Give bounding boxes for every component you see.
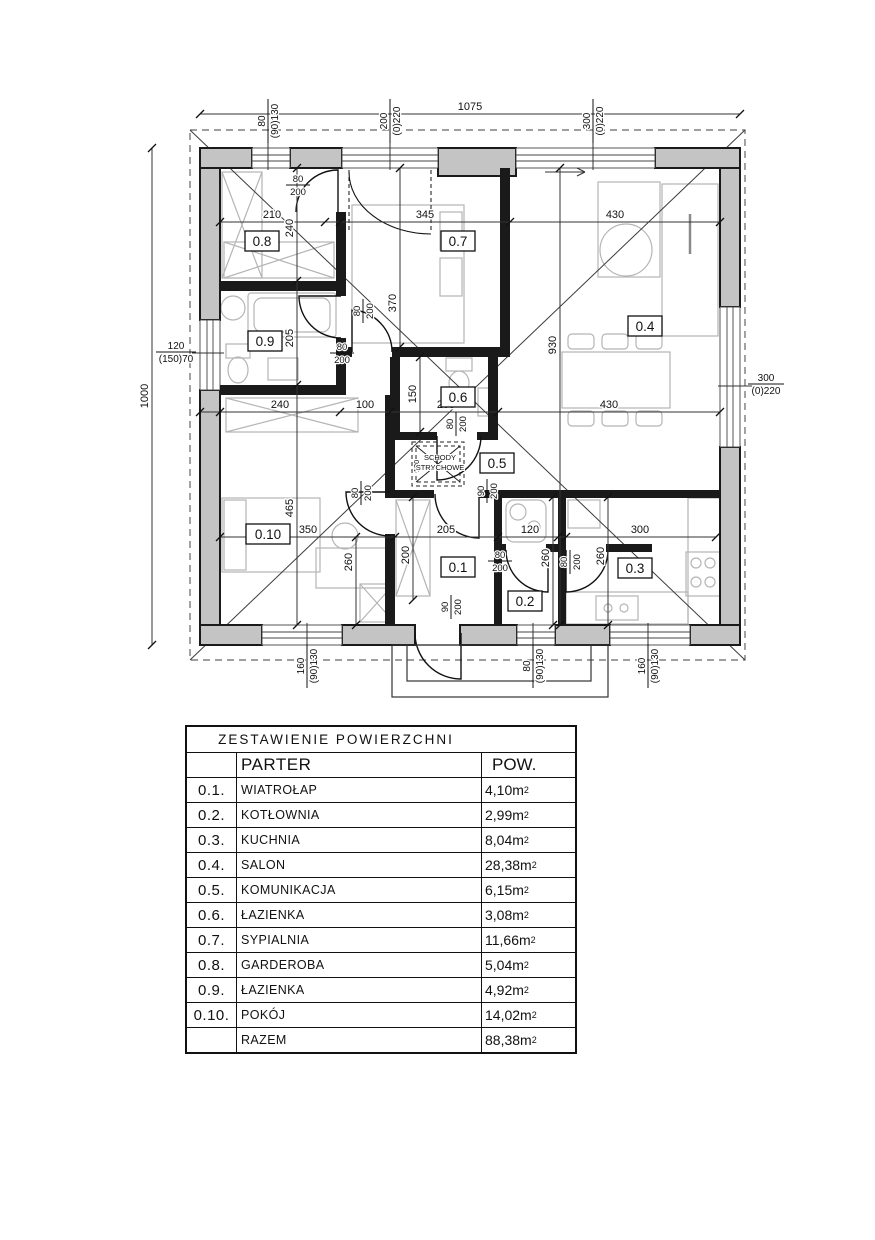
table-row: 0.8. GARDEROBA 5,04m2	[187, 952, 575, 977]
bed-icon	[352, 205, 464, 343]
area-value: 6,15	[485, 882, 512, 898]
svg-text:200: 200	[334, 355, 350, 366]
dim-label: 300	[631, 524, 649, 536]
area-unit: m	[512, 832, 524, 848]
area-unit: m	[512, 882, 524, 898]
room-id: 0.8.	[187, 953, 237, 977]
fridge-icon	[568, 500, 600, 528]
area-unit: m	[512, 982, 524, 998]
svg-text:(90)130: (90)130	[309, 648, 320, 683]
dim-label: 260	[595, 547, 607, 565]
area-unit: m	[519, 932, 531, 948]
svg-text:200: 200	[572, 554, 583, 570]
area-value: 4,10	[485, 782, 512, 798]
table-title-row: ZESTAWIENIE POWIERZCHNI	[187, 727, 575, 752]
direction-arrow	[545, 168, 585, 176]
kitchen-counter-icon	[566, 592, 688, 624]
svg-text:80: 80	[559, 557, 570, 568]
window	[516, 148, 655, 168]
window-label: 80(90)130	[257, 99, 281, 143]
table-header-row: PARTER POW.	[187, 752, 575, 777]
room-number: 0.7	[449, 234, 468, 249]
dim-label: 1000	[139, 384, 151, 408]
table-row: 0.3. KUCHNIA 8,04m2	[187, 827, 575, 852]
chair-icon	[332, 523, 358, 549]
window	[610, 625, 690, 645]
room-number: 0.1	[449, 560, 468, 575]
svg-text:200: 200	[458, 416, 469, 432]
room-id: 0.6.	[187, 903, 237, 927]
dim-label: 465	[284, 499, 296, 517]
room-id: 0.10.	[187, 1003, 237, 1027]
dim-label: 150	[407, 385, 419, 403]
entrance-steps	[392, 645, 608, 697]
door-arc	[349, 172, 431, 234]
room-name: SALON	[237, 853, 482, 877]
window	[252, 148, 290, 168]
room-number: 0.8	[253, 234, 272, 249]
dim-label: 240	[284, 219, 296, 237]
room-name: SYPIALNIA	[237, 928, 482, 952]
svg-text:160: 160	[296, 657, 307, 674]
room-name: ŁAZIENKA	[237, 978, 482, 1002]
sink-icon	[268, 358, 298, 380]
svg-text:200: 200	[453, 599, 464, 615]
room-area: 4,10m2	[482, 778, 575, 802]
window	[720, 307, 740, 447]
room-number: 0.9	[256, 334, 275, 349]
svg-text:80: 80	[445, 419, 456, 430]
svg-text:120: 120	[168, 341, 185, 352]
room-name: KUCHNIA	[237, 828, 482, 852]
room-name: KOTŁOWNIA	[237, 803, 482, 827]
area-value: 5,04	[485, 957, 512, 973]
room-area: 8,04m2	[482, 828, 575, 852]
svg-text:80: 80	[522, 660, 533, 672]
room-number: 0.3	[626, 561, 645, 576]
dim-label: 1075	[458, 101, 482, 113]
window	[200, 320, 220, 390]
svg-text:(0)220: (0)220	[752, 386, 781, 397]
toilet-icon	[226, 344, 250, 383]
table-row: 0.7. SYPIALNIA 11,66m2	[187, 927, 575, 952]
dim-label: 240	[271, 399, 289, 411]
room-id: 0.2.	[187, 803, 237, 827]
kitchen-sink-icon	[596, 596, 638, 620]
area-unit: m	[512, 807, 524, 823]
svg-text:80: 80	[293, 174, 304, 185]
room-area: 4,92m2	[482, 978, 575, 1002]
area-value: 88,38	[485, 1032, 520, 1048]
room-area: 14,02m2	[482, 1003, 575, 1027]
area-value: 2,99	[485, 807, 512, 823]
dim-label: 200	[400, 546, 412, 564]
svg-text:80: 80	[495, 550, 506, 561]
area-value: 8,04	[485, 832, 512, 848]
window	[262, 625, 342, 645]
svg-text:90: 90	[440, 602, 451, 613]
svg-text:200: 200	[365, 303, 376, 319]
dim-label: 210	[263, 209, 281, 221]
svg-text:80: 80	[352, 306, 363, 317]
window-label: 200(0)220	[379, 99, 403, 143]
room-name: KOMUNIKACJA	[237, 878, 482, 902]
area-unit: m	[512, 907, 524, 923]
room-area: 28,38m2	[482, 853, 575, 877]
washbasin-icon	[221, 296, 245, 320]
wardrobe-icon	[222, 172, 334, 278]
svg-text:(0)220: (0)220	[392, 106, 403, 135]
room-number: 0.6	[449, 390, 468, 405]
header-id-cell	[187, 753, 237, 777]
dim-label: 260	[540, 549, 552, 567]
room-number: 0.4	[636, 319, 655, 334]
dim-label: 370	[387, 294, 399, 312]
svg-text:160: 160	[637, 657, 648, 674]
room-number: 0.10	[255, 527, 281, 542]
room-number: 0.2	[516, 594, 535, 609]
svg-text:80: 80	[257, 115, 268, 127]
room-number: 0.5	[488, 456, 507, 471]
table-row: 0.5. KOMUNIKACJA 6,15m2	[187, 877, 575, 902]
total-id-cell	[187, 1028, 237, 1052]
table-row: 0.4. SALON 28,38m2	[187, 852, 575, 877]
svg-text:(90)130: (90)130	[650, 648, 661, 683]
svg-text:200: 200	[492, 563, 508, 574]
dim-label: 205	[437, 524, 455, 536]
room-name: WIATROŁAP	[237, 778, 482, 802]
table-title: ZESTAWIENIE POWIERZCHNI	[187, 727, 575, 752]
window-label: 300(0)220	[748, 373, 784, 397]
wardrobe-icon	[226, 398, 358, 432]
coffee-table-icon	[600, 224, 652, 276]
room-id: 0.3.	[187, 828, 237, 852]
area-unit: m	[520, 1007, 532, 1023]
total-area: 88,38m2	[482, 1028, 575, 1052]
svg-text:90: 90	[476, 486, 487, 497]
svg-text:(90)130: (90)130	[535, 648, 546, 683]
svg-text:200: 200	[363, 485, 374, 501]
door-label: 80200	[352, 299, 376, 323]
room-area: 3,08m2	[482, 903, 575, 927]
table-row: 0.2. KOTŁOWNIA 2,99m2	[187, 802, 575, 827]
svg-text:80: 80	[337, 342, 348, 353]
svg-text:200: 200	[379, 112, 390, 129]
area-value: 28,38	[485, 857, 520, 873]
table-row: 0.10. POKÓJ 14,02m2	[187, 1002, 575, 1027]
door-label: 80200	[350, 481, 374, 505]
door-arc	[415, 633, 461, 679]
room-name: GARDEROBA	[237, 953, 482, 977]
dim-label: 350	[299, 524, 317, 536]
room-id: 0.9.	[187, 978, 237, 1002]
svg-text:300: 300	[582, 112, 593, 129]
table-total-row: RAZEM 88,38m2	[187, 1027, 575, 1052]
room-area: 2,99m2	[482, 803, 575, 827]
stove-icon	[686, 552, 720, 596]
room-area: 11,66m2	[482, 928, 575, 952]
window-label: 160(90)130	[637, 644, 661, 688]
area-value: 4,92	[485, 982, 512, 998]
terrace-door	[349, 170, 431, 232]
svg-text:(90)130: (90)130	[270, 103, 281, 138]
dim-label: 930	[547, 336, 559, 354]
table-row: 0.1. WIATROŁAP 4,10m2	[187, 777, 575, 802]
area-value: 11,66	[485, 932, 519, 948]
room-id: 0.5.	[187, 878, 237, 902]
area-value: 14,02	[485, 1007, 520, 1023]
total-label: RAZEM	[237, 1028, 482, 1052]
table-row: 0.9. ŁAZIENKA 4,92m2	[187, 977, 575, 1002]
svg-text:(0)220: (0)220	[595, 106, 606, 135]
room-area: 5,04m2	[482, 953, 575, 977]
room-id: 0.1.	[187, 778, 237, 802]
svg-text:200: 200	[489, 483, 500, 499]
dim-label: 430	[600, 399, 618, 411]
window-label: 300(0)220	[582, 99, 606, 143]
room-name: POKÓJ	[237, 1003, 482, 1027]
dim-label: 345	[416, 209, 434, 221]
sofa-icon	[598, 182, 718, 336]
svg-text:200: 200	[290, 187, 306, 198]
room-area: 6,15m2	[482, 878, 575, 902]
dim-label: 260	[343, 553, 355, 571]
room-name: ŁAZIENKA	[237, 903, 482, 927]
area-unit: m	[520, 1032, 532, 1048]
table-row: 0.6. ŁAZIENKA 3,08m2	[187, 902, 575, 927]
dim-label: 100	[356, 399, 374, 411]
area-value: 3,08	[485, 907, 512, 923]
area-unit: m	[520, 857, 532, 873]
floor-plan: 1075 1000 210 345 430 240 370 240 100 20…	[0, 0, 875, 730]
attic-stairs-label: STRYCHOWE	[416, 463, 465, 472]
dim-label: 120	[521, 524, 539, 536]
header-parter: PARTER	[237, 753, 482, 777]
window-label: 160(90)130	[296, 644, 320, 688]
area-unit: m	[512, 782, 524, 798]
area-unit: m	[512, 957, 524, 973]
svg-text:80: 80	[350, 488, 361, 499]
area-table: ZESTAWIENIE POWIERZCHNI PARTER POW. 0.1.…	[185, 725, 577, 1054]
room-id: 0.7.	[187, 928, 237, 952]
svg-text:(150)70: (150)70	[159, 354, 194, 365]
header-pow: POW.	[482, 753, 575, 777]
svg-text:300: 300	[758, 373, 775, 384]
door-label: 90200	[440, 595, 464, 619]
door-label: 80200	[286, 174, 310, 198]
dim-label: 205	[284, 329, 296, 347]
door-label: 80200	[445, 412, 469, 436]
room-id: 0.4.	[187, 853, 237, 877]
attic-stairs-label: SCHODY	[424, 453, 456, 462]
dim-label: 430	[606, 209, 624, 221]
